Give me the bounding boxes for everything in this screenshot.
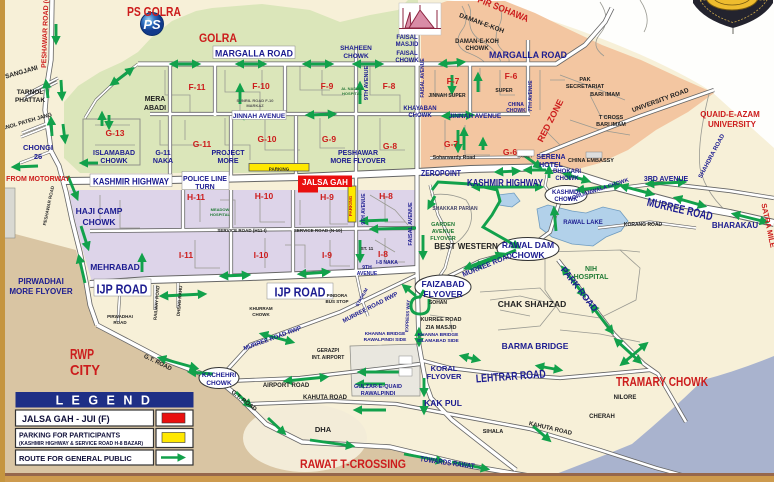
svg-text:DAMAN-E-KOH: DAMAN-E-KOH — [455, 39, 499, 45]
svg-text:ROAD: ROAD — [113, 320, 127, 325]
svg-text:FAIZABAD: FAIZABAD — [422, 279, 465, 289]
svg-text:NIH: NIH — [585, 266, 597, 273]
svg-text:KHURRAM: KHURRAM — [249, 306, 272, 311]
svg-text:PIRWADHAI: PIRWADHAI — [107, 314, 133, 319]
svg-text:UNIVERSITY: UNIVERSITY — [708, 120, 757, 129]
svg-text:BARI IMAM: BARI IMAM — [596, 122, 626, 128]
svg-text:HOSPITAL: HOSPITAL — [210, 212, 230, 217]
svg-text:PAK: PAK — [579, 77, 590, 83]
svg-text:BARMA BRIDGE: BARMA BRIDGE — [502, 341, 569, 351]
svg-text:G-6: G-6 — [503, 147, 517, 157]
svg-text:RAWALPINDI: RAWALPINDI — [361, 391, 396, 397]
svg-text:JINNAH SUPER: JINNAH SUPER — [428, 93, 466, 99]
svg-text:T CROSS: T CROSS — [599, 115, 624, 121]
svg-text:KASHMIR HIGHWAY: KASHMIR HIGHWAY — [93, 177, 169, 187]
svg-text:I-10: I-10 — [254, 250, 269, 260]
svg-text:HAJI CAMP: HAJI CAMP — [76, 206, 123, 216]
svg-text:9TH AVENUE: 9TH AVENUE — [364, 66, 370, 101]
svg-text:FROM MOTORWAY: FROM MOTORWAY — [6, 176, 70, 183]
svg-text:FAISAL: FAISAL — [396, 51, 418, 57]
svg-text:I-8: I-8 — [378, 249, 388, 259]
svg-text:CHOWK: CHOWK — [395, 58, 419, 64]
svg-text:KHANNA BRIDGE: KHANNA BRIDGE — [418, 332, 459, 338]
svg-text:FLYOVER: FLYOVER — [430, 236, 455, 242]
svg-text:CHOWK: CHOWK — [100, 158, 127, 165]
svg-text:MORE: MORE — [218, 158, 239, 165]
svg-text:SIHALA: SIHALA — [483, 429, 504, 435]
svg-text:Soharwardy Road: Soharwardy Road — [433, 155, 476, 161]
svg-text:HOTEL: HOTEL — [539, 162, 563, 169]
svg-text:F-7: F-7 — [447, 76, 460, 86]
svg-text:G-10: G-10 — [258, 134, 277, 144]
svg-text:FAISAL AVENUE: FAISAL AVENUE — [420, 58, 426, 98]
svg-text:ZEROPOINT: ZEROPOINT — [421, 168, 462, 178]
svg-text:G-9: G-9 — [322, 134, 336, 144]
svg-text:TARNOL: TARNOL — [17, 89, 44, 96]
svg-text:NILORE: NILORE — [614, 395, 637, 401]
svg-text:INT. AIRPORT: INT. AIRPORT — [312, 355, 345, 361]
svg-text:KASHMIR HIGHWAY: KASHMIR HIGHWAY — [467, 177, 543, 189]
svg-text:TURN: TURN — [195, 184, 214, 191]
svg-text:GOLRA: GOLRA — [199, 33, 237, 45]
svg-text:BEST WESTERN: BEST WESTERN — [434, 242, 498, 251]
svg-text:ROUTE FOR GENERAL PUBLIC: ROUTE FOR GENERAL PUBLIC — [19, 454, 132, 463]
svg-text:CHINA EMBASSY: CHINA EMBASSY — [568, 158, 614, 164]
svg-text:CHOWK: CHOWK — [465, 46, 489, 52]
svg-text:F-11: F-11 — [188, 82, 205, 92]
svg-text:SOHAN: SOHAN — [429, 300, 447, 306]
svg-text:L E G E N D: L E G E N D — [56, 394, 153, 408]
svg-text:CHOWK: CHOWK — [82, 217, 116, 227]
svg-text:NAKA: NAKA — [153, 158, 173, 165]
svg-text:PINDORA: PINDORA — [327, 293, 349, 298]
svg-text:CHOWK: CHOWK — [408, 113, 432, 119]
svg-text:SECRETARIAT: SECRETARIAT — [566, 84, 605, 90]
svg-text:F-8: F-8 — [383, 81, 396, 91]
svg-text:PS GOLRA: PS GOLRA — [127, 5, 181, 19]
svg-text:CHONGI: CHONGI — [23, 143, 53, 152]
svg-text:DHA: DHA — [315, 425, 332, 434]
svg-text:G-8: G-8 — [383, 141, 397, 151]
svg-text:CHOWK: CHOWK — [555, 176, 579, 182]
svg-text:IJP ROAD: IJP ROAD — [97, 283, 148, 297]
svg-text:PESHAWAR: PESHAWAR — [338, 150, 378, 157]
svg-text:G-13: G-13 — [106, 128, 125, 138]
svg-text:PARKING FOR PARTICIPANTS: PARKING FOR PARTICIPANTS — [19, 433, 120, 440]
svg-text:G-11: G-11 — [193, 139, 212, 149]
svg-text:CHOWK: CHOWK — [252, 312, 270, 317]
svg-text:CHERAH: CHERAH — [589, 414, 615, 420]
svg-text:CHOWK: CHOWK — [506, 108, 526, 114]
svg-text:MARGALLA ROAD: MARGALLA ROAD — [489, 50, 567, 61]
svg-text:SERVICE ROAD (N-10): SERVICE ROAD (N-10) — [294, 228, 343, 233]
svg-text:PIRWADHAI: PIRWADHAI — [18, 277, 64, 286]
svg-text:BHARAKAU: BHARAKAU — [712, 221, 758, 230]
svg-text:CHOWK: CHOWK — [206, 380, 232, 387]
svg-text:KHAYABAN: KHAYABAN — [403, 106, 436, 112]
svg-text:GERAZPI: GERAZPI — [317, 348, 340, 354]
svg-text:KURREE ROAD: KURREE ROAD — [421, 317, 462, 323]
svg-text:RAWALPINDI SIDE: RAWALPINDI SIDE — [364, 337, 407, 343]
svg-text:MARKAZ: MARKAZ — [246, 103, 264, 108]
svg-text:H-9: H-9 — [320, 192, 334, 202]
svg-text:PROJECT: PROJECT — [211, 150, 245, 157]
svg-text:SERENA: SERENA — [536, 154, 565, 161]
svg-text:MORE FLYOVER: MORE FLYOVER — [9, 287, 72, 296]
svg-text:7TH AVENUE: 7TH AVENUE — [528, 80, 534, 112]
svg-text:IJP ROAD: IJP ROAD — [275, 286, 326, 300]
svg-text:G-7: G-7 — [444, 139, 458, 149]
svg-text:GARDEN: GARDEN — [431, 222, 455, 228]
svg-text:F-10: F-10 — [252, 81, 270, 91]
svg-text:CITY: CITY — [70, 362, 100, 379]
svg-text:BARI IMAM: BARI IMAM — [590, 92, 620, 98]
svg-text:AVENUE: AVENUE — [432, 229, 455, 235]
svg-text:CHOWK: CHOWK — [511, 250, 545, 260]
svg-text:CHOWK: CHOWK — [343, 53, 369, 60]
svg-text:MORE FLYOVER: MORE FLYOVER — [330, 158, 385, 165]
svg-text:SUPER: SUPER — [495, 88, 513, 94]
svg-text:MEHRABAD: MEHRABAD — [90, 262, 140, 272]
svg-text:FLYOVER: FLYOVER — [427, 372, 462, 381]
svg-text:ABADI: ABADI — [144, 105, 166, 112]
svg-text:KHANNA BRIDGE: KHANNA BRIDGE — [365, 331, 406, 337]
svg-text:I-8 NAKA: I-8 NAKA — [376, 260, 398, 266]
svg-text:SHAKKAR PARIAN: SHAKKAR PARIAN — [432, 206, 478, 212]
svg-text:RWP: RWP — [70, 346, 94, 363]
svg-text:FLYOVER: FLYOVER — [423, 289, 462, 299]
svg-text:FAISAL AVENUE: FAISAL AVENUE — [408, 202, 414, 246]
svg-text:I-9: I-9 — [322, 250, 332, 260]
svg-text:H-11: H-11 — [187, 192, 205, 202]
svg-text:H-8: H-8 — [379, 191, 393, 201]
svg-text:3RD AVENUE: 3RD AVENUE — [644, 176, 689, 183]
svg-text:DHOKARI: DHOKARI — [553, 169, 581, 175]
svg-text:PHATTAK: PHATTAK — [15, 97, 45, 104]
svg-text:9TH AVENUE: 9TH AVENUE — [361, 193, 367, 225]
svg-text:PS: PS — [143, 17, 161, 32]
svg-text:ISLAMABAD SIDE: ISLAMABAD SIDE — [417, 338, 459, 344]
svg-text:KAK PUL: KAK PUL — [424, 398, 462, 408]
svg-text:MASJID: MASJID — [396, 42, 419, 48]
svg-text:TRAMARY CHOWK: TRAMARY CHOWK — [616, 375, 708, 389]
svg-text:FAISAL: FAISAL — [396, 35, 418, 41]
svg-text:PARKING: PARKING — [348, 195, 353, 216]
svg-text:KACHEHRI: KACHEHRI — [202, 372, 237, 379]
svg-text:PARKING: PARKING — [269, 167, 290, 172]
svg-text:RAWAL LAKE: RAWAL LAKE — [563, 220, 603, 226]
svg-text:POLICE LINE: POLICE LINE — [183, 176, 227, 183]
svg-text:HOSPITAL: HOSPITAL — [574, 274, 610, 281]
svg-text:F-6: F-6 — [505, 71, 518, 81]
svg-text:AIRPORT ROAD: AIRPORT ROAD — [263, 383, 310, 389]
svg-text:26: 26 — [34, 152, 42, 161]
svg-text:SERVICE ROAD (H11-I): SERVICE ROAD (H11-I) — [217, 228, 267, 233]
svg-text:GULZAR-E-QUAID: GULZAR-E-QUAID — [354, 384, 402, 390]
svg-text:AVENUE: AVENUE — [357, 271, 378, 277]
svg-text:ISLAMABAD: ISLAMABAD — [93, 150, 135, 157]
svg-text:QUAID-E-AZAM: QUAID-E-AZAM — [700, 110, 760, 119]
svg-text:JALSA GAH - JUI (F): JALSA GAH - JUI (F) — [22, 414, 110, 424]
svg-text:JINNAH AVENUE: JINNAH AVENUE — [449, 113, 502, 120]
svg-text:RAWAT T-CROSSING: RAWAT T-CROSSING — [300, 459, 406, 471]
svg-text:I-11: I-11 — [179, 250, 193, 260]
svg-text:RAWAL DAM: RAWAL DAM — [502, 240, 554, 250]
svg-text:KORANG ROAD: KORANG ROAD — [624, 222, 663, 228]
svg-text:ST. 11: ST. 11 — [361, 246, 374, 251]
svg-text:ZIA MASJID: ZIA MASJID — [426, 325, 457, 331]
svg-text:MERA: MERA — [145, 96, 166, 103]
svg-text:JINNAH AVENUE: JINNAH AVENUE — [233, 113, 286, 120]
svg-text:SHAHEEN: SHAHEEN — [340, 45, 372, 52]
svg-text:JALSA GAH: JALSA GAH — [302, 178, 348, 187]
svg-text:KAHUTA ROAD: KAHUTA ROAD — [303, 395, 348, 401]
svg-text:(KASHMIR HIGHWAY & SERVICE ROA: (KASHMIR HIGHWAY & SERVICE ROAD H-8 BAZA… — [19, 441, 143, 447]
svg-text:H-10: H-10 — [255, 191, 274, 201]
svg-text:CHAK SHAHZAD: CHAK SHAHZAD — [498, 299, 566, 309]
svg-text:F-9: F-9 — [321, 81, 334, 91]
svg-text:MARGALLA ROAD: MARGALLA ROAD — [215, 49, 293, 60]
svg-text:BUS STOP: BUS STOP — [326, 299, 349, 304]
svg-text:HOSPITAL: HOSPITAL — [342, 91, 362, 96]
svg-text:G-11: G-11 — [155, 150, 170, 157]
